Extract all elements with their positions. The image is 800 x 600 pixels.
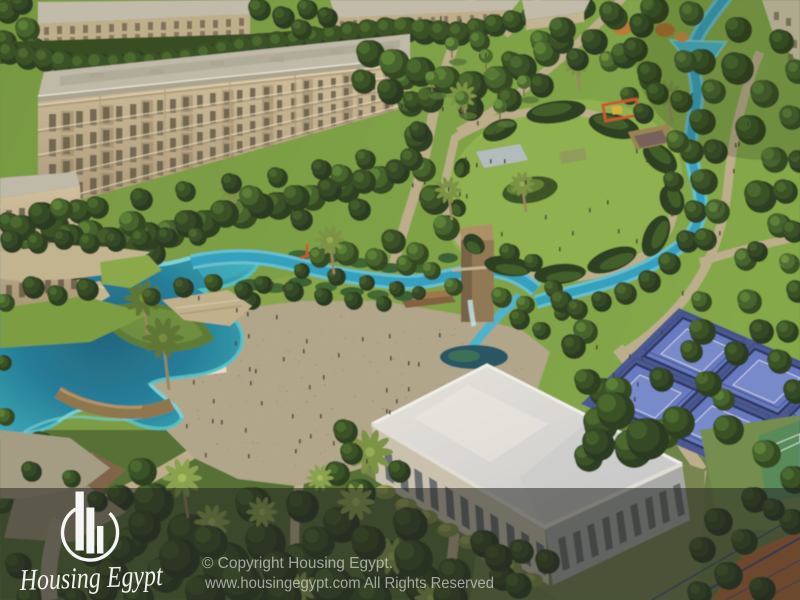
svg-text:Housing Egypt: Housing Egypt	[18, 559, 163, 597]
svg-text:© Copyright Housing Egypt.: © Copyright Housing Egypt.	[202, 555, 393, 572]
svg-text:www.housingegypt.com All Right: www.housingegypt.com All Rights Reserved	[204, 575, 494, 592]
